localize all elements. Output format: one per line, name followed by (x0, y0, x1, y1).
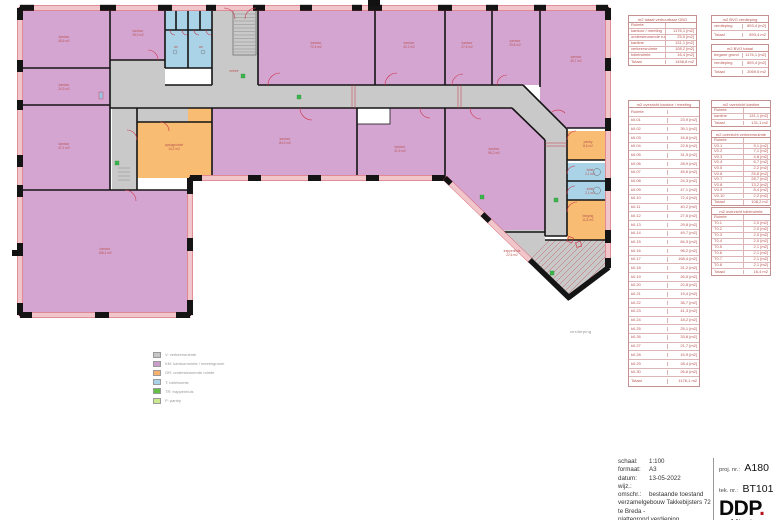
room-label: berging11,8 m2 (582, 214, 594, 222)
table-row: k0.1831,2 [m2] (629, 264, 699, 273)
schaal-label: schaal: (618, 458, 649, 466)
room-label: kantoor24,3 m2 (58, 83, 70, 91)
ddp-logo-dot: . (759, 497, 764, 520)
legend-swatch (153, 370, 161, 376)
legend-item: OR: ondersteunende ruimte (153, 368, 224, 377)
room-label: kantoor47,1 m2 (58, 142, 70, 150)
table-title: m2 overzicht kantoor / meeting (629, 101, 699, 108)
tek-nr-label: tek. nr.: (719, 488, 738, 494)
formaat-label: formaat: (618, 466, 649, 474)
room-label: trappenhuis22,6 m2 (504, 249, 521, 257)
table-row: k0.1926,5 [m2] (629, 273, 699, 282)
room-label: kantoor29,8 m2 (509, 39, 521, 47)
table-row: k0.0628,9 [m2] (629, 160, 699, 169)
schaal-value: 1:100 (649, 458, 664, 465)
legend-item: KM: kantoorruimte / meetingroom (153, 359, 224, 368)
room-label: wc (174, 45, 178, 49)
legend-swatch (153, 361, 161, 367)
legend-item: V: verkeersruimte (153, 350, 224, 359)
table-row: k0.2022,8 [m2] (629, 282, 699, 291)
table-row: k0.2119,4 [m2] (629, 290, 699, 299)
table-title: m2 BVO verdieping (712, 16, 768, 23)
legend-label: V: verkeersruimte (165, 352, 196, 357)
table-bvo-verdieping: m2 BVO verdiepingverdieping893,4 [m2]Tot… (711, 15, 769, 40)
room-label: kantoor49,7 m2 (570, 55, 582, 63)
tek-nr-value: BT101 (742, 483, 773, 495)
room-label: kantoor72,4 m2 (310, 41, 322, 49)
table-row: k0.0824,3 [m2] (629, 178, 699, 187)
table-row: verdieping893,4 [m2] (712, 60, 768, 68)
legend-item: P: pantry (153, 396, 224, 405)
table-title: m2 overzicht kantine (712, 101, 770, 108)
floor-plan: kantoor45,6 m2kantoor24,3 m2kantoor47,1 … (0, 0, 620, 345)
wijz-label: wijz.: (618, 483, 649, 491)
room-label: entree (229, 69, 238, 73)
table-row: k0.0316,8 [m2] (629, 134, 699, 143)
omschr-line2: verzamelgebouw Takkebijsters 72 (618, 499, 711, 507)
legend-item: TR: trappenhuis (153, 387, 224, 396)
table-row: k0.2418,2 [m2] (629, 317, 699, 326)
table-title: m2 BVO totaal (712, 45, 768, 52)
table-row: Totaal1456,8 m2 (629, 59, 696, 65)
proj-nr-value: A180 (744, 462, 769, 474)
table-bvo-totaal: m2 BVO totaalbegane grond1176,1 [m2]verd… (711, 44, 769, 77)
table-row: k0.1696,2 [m2] (629, 247, 699, 256)
table-row: k0.2236,7 [m2] (629, 299, 699, 308)
legend-label: P: pantry (165, 398, 181, 403)
omschr-value: bestaande toestand (649, 491, 703, 498)
room-label: kantoor45,6 m2 (58, 35, 70, 43)
table-row: begane grond1176,1 [m2] (712, 52, 768, 60)
legend-swatch (153, 379, 161, 385)
room-label: kantoor96,2 m2 (488, 147, 500, 155)
title-block-ids: proj. nr.: A180 tek. nr.: BT101 DDP. arc… (716, 458, 773, 520)
room-label: kantoor40,2 m2 (403, 41, 415, 49)
table-row: k0.1584,3 [m2] (629, 238, 699, 247)
title-block-info: schaal:1:100 formaat:A3 datum:13-05-2022… (618, 458, 711, 520)
title-block: schaal:1:100 formaat:A3 datum:13-05-2022… (618, 458, 780, 520)
legend-swatch (153, 388, 161, 394)
room-label: pantry8,6 m2 (583, 140, 593, 148)
table-row: Totaal131,1 m2 (712, 120, 770, 126)
table-gbo: m2 totaal verhuurbaar GBORuimtekantoor /… (628, 15, 697, 66)
room-label: kantoor27,6 m2 (461, 41, 473, 49)
table-row: k0.2721,7 [m2] (629, 343, 699, 352)
table-verkeersruimte: m2 overzicht verkeersruimteRuimteV0.19,1… (711, 130, 771, 206)
table-kantine: m2 overzicht kantineRuimtekantine131,1 [… (711, 100, 771, 127)
table-row: k0.0745,6 [m2] (629, 169, 699, 178)
omschr-line4: plattegrond verdieping (618, 516, 711, 520)
room-label: kantoor31,5 m2 (394, 145, 406, 153)
table-row: k0.1227,6 [m2] (629, 212, 699, 221)
table-row: k0.1329,8 [m2] (629, 221, 699, 230)
omschr-label: omschr.: (618, 491, 649, 499)
datum-value: 13-05-2022 (649, 475, 681, 482)
ddp-logo: DDP. (719, 499, 773, 518)
table-row: k0.1140,2 [m2] (629, 204, 699, 213)
drawing-sheet: kantoor45,6 m2kantoor24,3 m2kantoor47,1 … (0, 0, 780, 520)
table-row: k0.2525,1 [m2] (629, 325, 699, 334)
table-row: Ruimte (629, 108, 699, 117)
table-kantoren: m2 overzicht kantoor / meetingRuimtek0.0… (628, 100, 700, 387)
table-row: k0.2341,3 [m2] (629, 308, 699, 317)
table-row: Totaal2069,5 m2 (712, 68, 768, 76)
floor-note: verdieping (570, 329, 591, 334)
legend-label: OR: ondersteunende ruimte (165, 370, 214, 375)
room-label: kantoor84,3 m2 (279, 137, 291, 145)
table-row: k0.1072,4 [m2] (629, 195, 699, 204)
table-title: m2 totaal verhuurbaar GBO (629, 16, 696, 23)
proj-nr-label: proj. nr.: (719, 467, 740, 473)
table-row: k0.0531,5 [m2] (629, 151, 699, 160)
table-toiletruimte: m2 overzicht toiletruimteRuimteT0.12,0 [… (711, 207, 771, 276)
datum-label: datum: (618, 475, 649, 483)
omschr-line3: te Breda - (618, 508, 711, 516)
legend-swatch (153, 352, 161, 358)
legend-swatch (153, 398, 161, 404)
table-row: k0.0123,9 [m2] (629, 117, 699, 126)
table-row: k0.2928,4 [m2] (629, 360, 699, 369)
table-title: m2 overzicht toiletruimte (712, 208, 770, 215)
entrance-stair (233, 10, 256, 55)
table-title: m2 overzicht verkeersruimte (712, 131, 770, 138)
legend: V: verkeersruimteKM: kantoorruimte / mee… (153, 350, 224, 405)
table-row: Totaal893,4 m2 (712, 31, 768, 39)
table-row: Totaal16,4 m2 (712, 269, 770, 275)
table-row: k0.1449,7 [m2] (629, 230, 699, 239)
formaat-value: A3 (649, 466, 657, 473)
room-label: kantoor168,4 m2 (98, 247, 112, 255)
table-row: k0.17168,4 [m2] (629, 256, 699, 265)
table-row: k0.0947,1 [m2] (629, 186, 699, 195)
legend-label: KM: kantoorruimte / meetingroom (165, 361, 224, 366)
table-row: Totaal1176,1 m2 (629, 377, 699, 386)
legend-item: T: toiletruimte (153, 378, 224, 387)
title-block-divider (713, 458, 714, 520)
legend-label: T: toiletruimte (165, 380, 189, 385)
table-row: Totaal108,2 m2 (712, 200, 770, 206)
table-row: k0.0422,6 [m2] (629, 143, 699, 152)
table-row: k0.2815,9 [m2] (629, 351, 699, 360)
table-row: k0.0239,1 [m2] (629, 125, 699, 134)
table-row: verdieping893,4 [m2] (712, 23, 768, 31)
table-row: k0.2633,8 [m2] (629, 334, 699, 343)
table-row: k0.3026,6 [m2] (629, 369, 699, 378)
legend-label: TR: trappenhuis (165, 389, 193, 394)
room-label: kantoor28,9 m2 (132, 29, 144, 37)
room-fills (20, 8, 608, 315)
room-label: wc (199, 45, 203, 49)
